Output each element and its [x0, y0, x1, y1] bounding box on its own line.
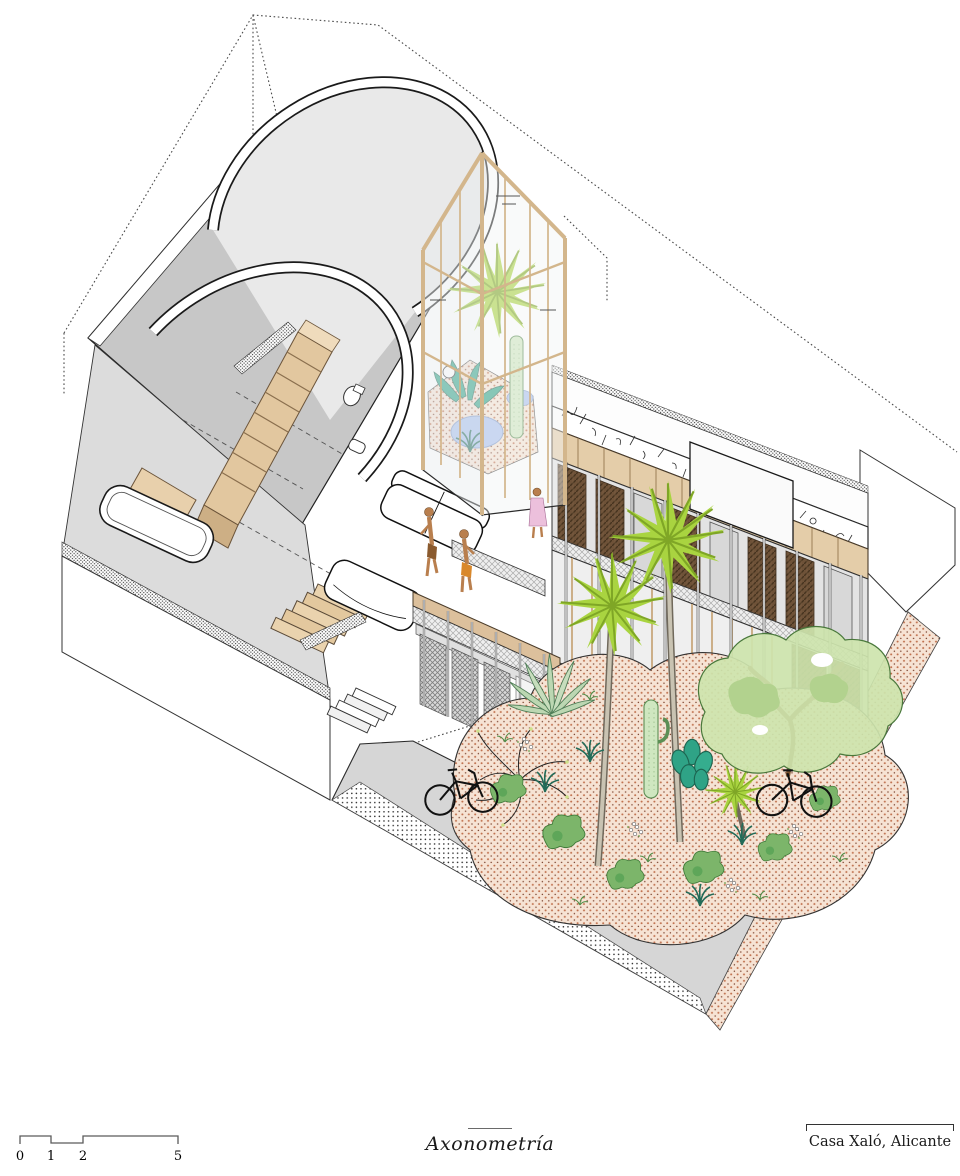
title-block: Casa Xaló, Alicante [806, 1124, 954, 1150]
title-bracket [806, 1124, 954, 1132]
sheet-footer: 0 1 2 5 Axonometría Casa Xaló, Alicante [0, 1118, 960, 1176]
scale-bar: 0 1 2 5 [6, 1122, 226, 1168]
drawing-label: Axonometría [380, 1133, 600, 1155]
scale-label-0: 0 [16, 1149, 24, 1164]
lower-stairs [327, 682, 396, 740]
axonometric-drawing [0, 0, 960, 1118]
tower-glass-right [482, 153, 565, 515]
drawing-caption: Axonometría [380, 1118, 600, 1155]
scale-label-5: 5 [174, 1149, 182, 1164]
neighbour-wall [860, 450, 955, 612]
scale-label-1: 1 [47, 1149, 55, 1164]
caption-rule [468, 1128, 512, 1129]
project-title: Casa Xaló, Alicante [806, 1134, 954, 1150]
scale-label-2: 2 [79, 1149, 87, 1164]
